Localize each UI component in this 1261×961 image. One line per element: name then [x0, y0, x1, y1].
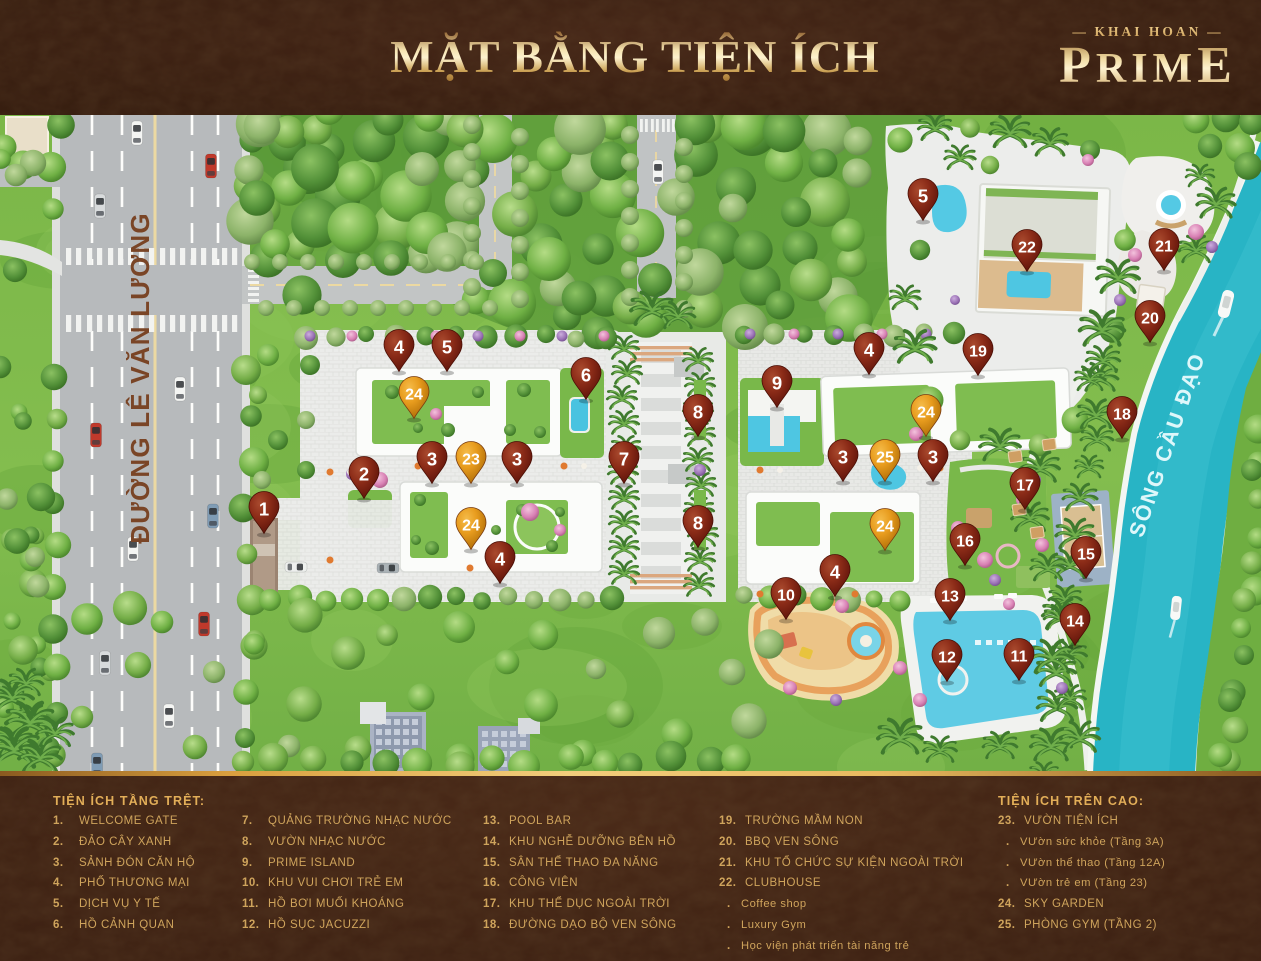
svg-text:16: 16 — [956, 534, 974, 551]
svg-text:24: 24 — [462, 518, 480, 535]
svg-text:3: 3 — [512, 449, 522, 470]
svg-text:7: 7 — [619, 449, 629, 470]
svg-text:14: 14 — [1066, 614, 1084, 631]
svg-text:10: 10 — [777, 588, 795, 605]
svg-text:3: 3 — [838, 447, 848, 468]
svg-text:21: 21 — [1155, 239, 1173, 256]
svg-text:3: 3 — [928, 447, 938, 468]
svg-text:5: 5 — [442, 337, 452, 358]
svg-text:1: 1 — [259, 499, 269, 520]
svg-text:19: 19 — [969, 344, 987, 361]
svg-text:13: 13 — [941, 589, 959, 606]
svg-text:15: 15 — [1077, 547, 1095, 564]
svg-text:2: 2 — [359, 464, 369, 485]
svg-text:11: 11 — [1011, 649, 1028, 666]
svg-text:4: 4 — [830, 562, 841, 583]
svg-text:3: 3 — [427, 449, 437, 470]
svg-text:8: 8 — [693, 402, 703, 423]
svg-text:18: 18 — [1113, 407, 1131, 424]
svg-text:17: 17 — [1016, 478, 1034, 495]
svg-text:9: 9 — [772, 373, 782, 394]
svg-text:12: 12 — [938, 650, 956, 667]
svg-text:4: 4 — [394, 337, 405, 358]
svg-text:24: 24 — [876, 519, 894, 536]
svg-text:4: 4 — [864, 340, 875, 361]
svg-text:ĐƯỜNG LÊ VĂN LƯƠNG: ĐƯỜNG LÊ VĂN LƯƠNG — [125, 212, 155, 544]
svg-text:24: 24 — [405, 387, 423, 404]
svg-text:5: 5 — [918, 186, 928, 207]
svg-text:8: 8 — [693, 513, 703, 534]
svg-text:23: 23 — [462, 452, 480, 469]
svg-text:20: 20 — [1141, 311, 1159, 328]
svg-text:4: 4 — [495, 549, 506, 570]
svg-text:24: 24 — [917, 405, 935, 422]
svg-text:6: 6 — [581, 365, 591, 386]
svg-text:22: 22 — [1018, 240, 1036, 257]
svg-text:25: 25 — [876, 450, 894, 467]
